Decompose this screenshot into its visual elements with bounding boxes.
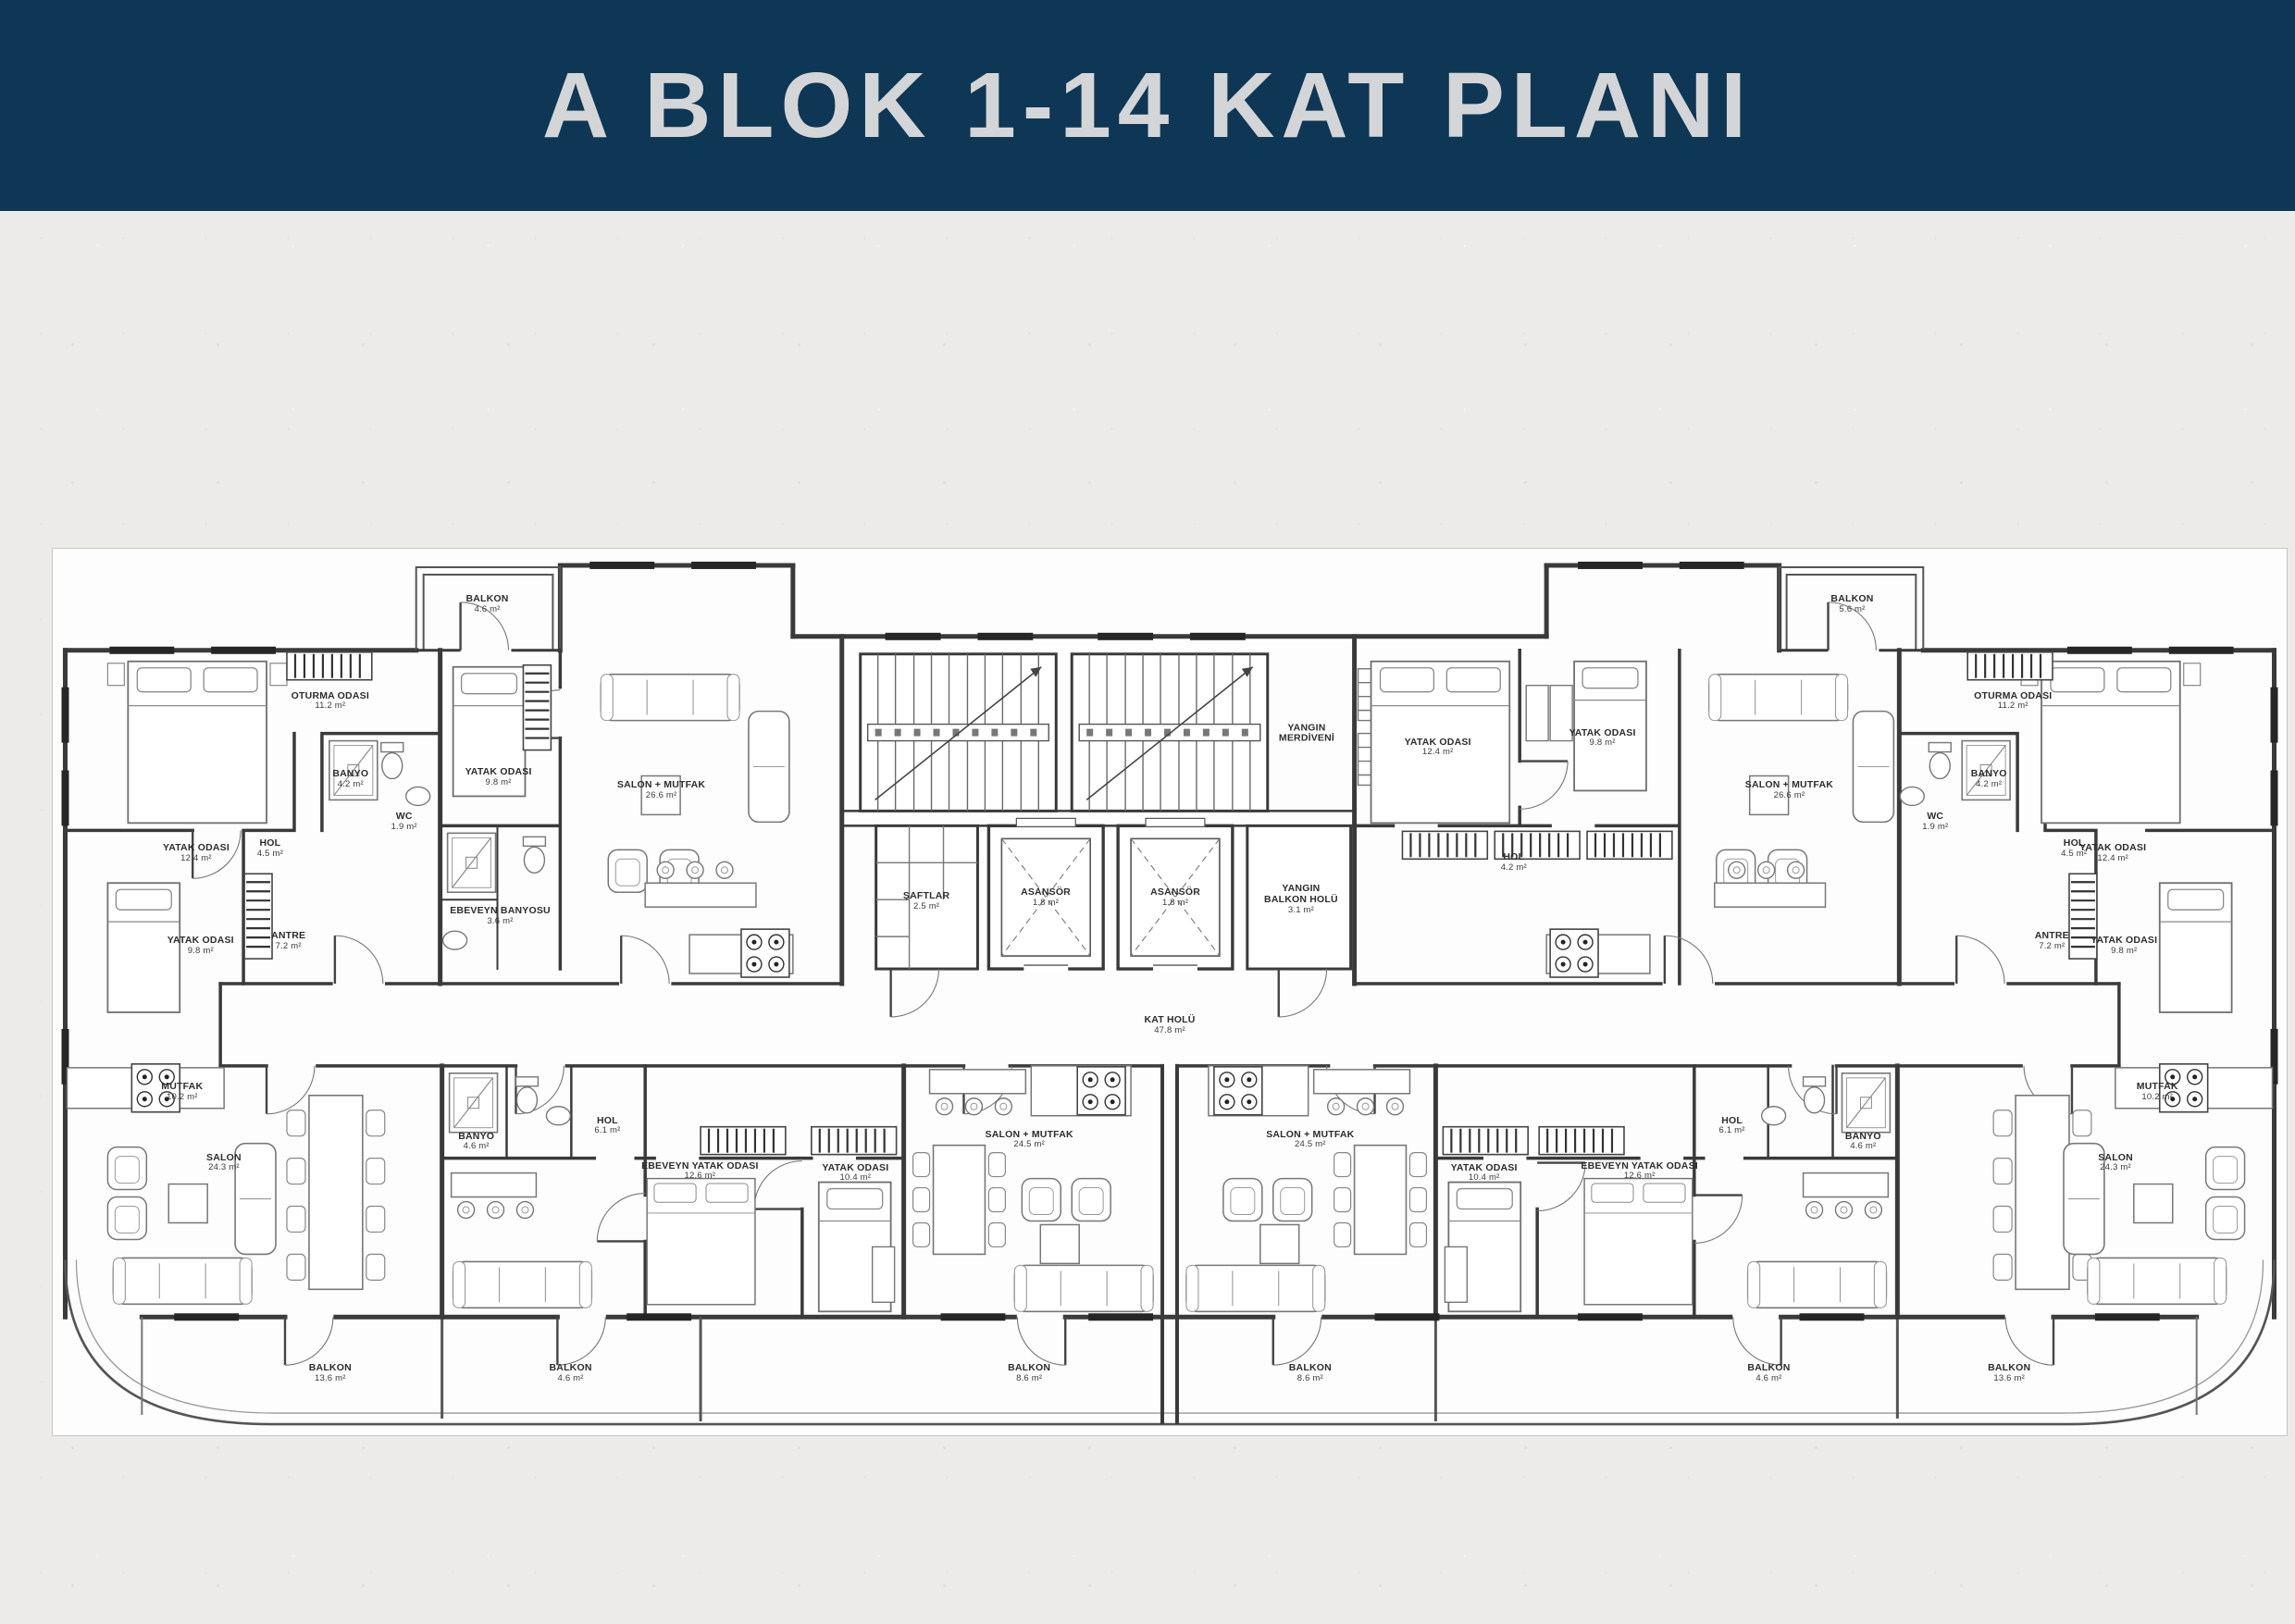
page: { "header": { "title": "A BLOK 1-14 KAT … bbox=[0, 0, 2295, 1624]
room-label: YATAK ODASI9.8 m² bbox=[465, 767, 532, 787]
room-label: SALON + MUTFAK26.6 m² bbox=[1745, 780, 1833, 800]
room-label: YATAK ODASI12.4 m² bbox=[2079, 843, 2146, 863]
room-label: SALON24.3 m² bbox=[206, 1152, 242, 1172]
room-label: BALKON4.6 m² bbox=[465, 594, 508, 614]
room-label: YATAK ODASI9.8 m² bbox=[2090, 936, 2157, 956]
room-label: YATAK ODASI9.8 m² bbox=[1569, 727, 1636, 748]
room-label: BALKON4.6 m² bbox=[1747, 1363, 1790, 1383]
room-label: EBEVEYN YATAK ODASI12.6 m² bbox=[641, 1160, 759, 1181]
floor-plan-sheet: BALKON4.6 m²OTURMA ODASI11.2 m²YATAK ODA… bbox=[52, 548, 2288, 1436]
room-label: BALKON13.6 m² bbox=[309, 1363, 352, 1383]
room-label: SALON + MUTFAK24.5 m² bbox=[986, 1130, 1073, 1150]
room-label: YATAK ODASI12.4 m² bbox=[1405, 737, 1471, 757]
room-label: YANGINMERDİVENİ bbox=[1279, 723, 1334, 745]
room-label: YATAK ODASI12.4 m² bbox=[163, 843, 229, 863]
room-label: ASANSÖR1.8 m² bbox=[1021, 887, 1071, 908]
room-label: WC1.9 m² bbox=[1922, 812, 1948, 832]
room-label: BALKON8.6 m² bbox=[1289, 1363, 1332, 1383]
room-label: BANYO4.2 m² bbox=[1971, 769, 2007, 789]
room-label: ANTRE7.2 m² bbox=[2035, 931, 2069, 951]
room-label: WC1.9 m² bbox=[391, 812, 417, 832]
room-label: HOL6.1 m² bbox=[594, 1115, 620, 1135]
room-label: BALKON5.6 m² bbox=[1830, 594, 1873, 614]
room-label: YATAK ODASI10.4 m² bbox=[1451, 1162, 1518, 1183]
room-label: YATAK ODASI9.8 m² bbox=[167, 936, 234, 956]
room-label: ASANSÖR1.8 m² bbox=[1150, 887, 1200, 908]
room-label: HOL4.5 m² bbox=[257, 838, 283, 859]
room-label: MUTFAK10.2 m² bbox=[2137, 1082, 2178, 1102]
room-label: EBEVEYN BANYOSU3.6 m² bbox=[450, 906, 551, 926]
room-label: BANYO4.6 m² bbox=[1845, 1132, 1881, 1152]
room-label: EBEVEYN YATAK ODASI12.6 m² bbox=[1581, 1160, 1698, 1181]
room-label: KAT HOLÜ47.8 m² bbox=[1144, 1015, 1195, 1035]
room-label: BANYO4.2 m² bbox=[332, 769, 368, 789]
room-label: OTURMA ODASI11.2 m² bbox=[1974, 690, 2052, 711]
room-label: BALKON13.6 m² bbox=[1988, 1363, 2030, 1383]
room-label: YATAK ODASI10.4 m² bbox=[822, 1162, 888, 1183]
room-label: ŞAFTLAR2.5 m² bbox=[903, 891, 949, 911]
room-label: SALON + MUTFAK26.6 m² bbox=[617, 780, 705, 800]
room-labels-layer: BALKON4.6 m²OTURMA ODASI11.2 m²YATAK ODA… bbox=[53, 549, 2287, 1435]
room-label: SALON + MUTFAK24.5 m² bbox=[1266, 1130, 1354, 1150]
room-label: MUTFAK10.2 m² bbox=[161, 1082, 203, 1102]
room-label: BANYO4.6 m² bbox=[458, 1132, 494, 1152]
room-label: ANTRE7.2 m² bbox=[271, 931, 305, 951]
room-label: BALKON8.6 m² bbox=[1008, 1363, 1050, 1383]
room-label: HOL4.5 m² bbox=[2061, 838, 2087, 859]
room-label: BALKON4.6 m² bbox=[550, 1363, 592, 1383]
room-label: YANGINBALKON HOLÜ3.1 m² bbox=[1264, 884, 1338, 915]
page-title: A BLOK 1-14 KAT PLANI bbox=[542, 59, 1753, 152]
room-label: SALON24.3 m² bbox=[2098, 1152, 2133, 1172]
title-banner: A BLOK 1-14 KAT PLANI bbox=[0, 0, 2295, 211]
room-label: OTURMA ODASI11.2 m² bbox=[292, 690, 369, 711]
room-label: HOL6.1 m² bbox=[1719, 1115, 1745, 1135]
room-label: HOL4.2 m² bbox=[1501, 852, 1527, 873]
